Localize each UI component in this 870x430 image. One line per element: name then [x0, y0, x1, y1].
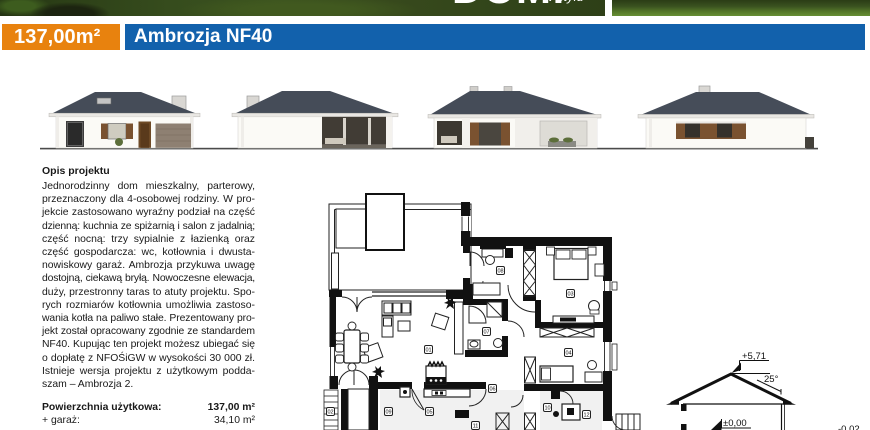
svg-text:05: 05 [426, 410, 432, 416]
svg-text:09: 09 [385, 410, 391, 416]
svg-text:08: 08 [497, 269, 503, 275]
svg-text:12: 12 [583, 413, 589, 419]
svg-text:-0,02: -0,02 [838, 424, 860, 430]
svg-text:06: 06 [489, 387, 495, 393]
svg-text:07: 07 [483, 330, 489, 336]
svg-text:03: 03 [567, 292, 573, 298]
svg-text:04: 04 [565, 351, 571, 357]
svg-text:25°: 25° [764, 374, 779, 385]
svg-text:11: 11 [473, 424, 479, 430]
svg-text:+5,71: +5,71 [742, 351, 766, 362]
svg-text:01: 01 [425, 348, 431, 354]
svg-text:02: 02 [327, 410, 333, 416]
svg-text:10: 10 [544, 406, 550, 412]
svg-text:±0,00: ±0,00 [723, 418, 747, 429]
